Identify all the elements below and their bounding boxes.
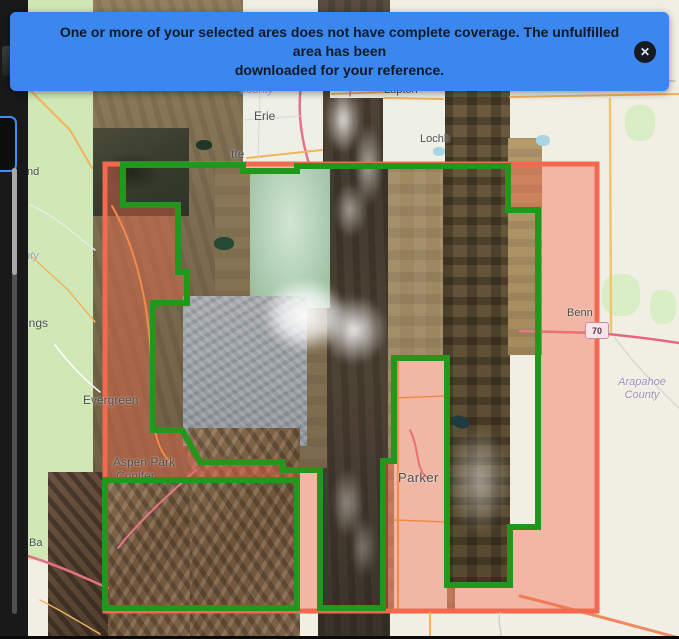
map-label-arapahoe-county: Arapahoe County (612, 376, 672, 402)
map-label-bennett-fragment: Benn (567, 307, 593, 319)
satellite-tile (188, 428, 300, 639)
close-button[interactable]: ✕ (634, 41, 656, 63)
satellite-tile (48, 472, 108, 639)
pond (196, 140, 212, 150)
satellite-tile (508, 138, 542, 355)
map-label-fragment-ings: ings (26, 316, 48, 330)
app-window: Boulder County Erie tte Fred Lupton Loch… (0, 0, 679, 639)
satellite-tile (105, 478, 190, 639)
satellite-tile (183, 296, 307, 446)
map-label-aspen-park: Aspen Park (113, 455, 175, 469)
street-tile (394, 358, 447, 612)
sidebar-tool-selected[interactable] (0, 116, 17, 172)
map-label-lochbuie-fragment: Lochb (420, 133, 450, 145)
map-label-parker: Parker (398, 470, 439, 485)
route-shield-i70: 70 (585, 322, 609, 339)
satellite-tile (250, 166, 330, 308)
scrollbar-thumb[interactable] (12, 168, 17, 275)
map-canvas[interactable] (0, 0, 679, 639)
map-label-fragment-ba: Ba (29, 537, 42, 549)
lake (536, 135, 550, 146)
lake (433, 147, 445, 156)
satellite-tile (93, 128, 189, 216)
map-label-lafayette-fragment: tte (231, 147, 244, 161)
map-label-fragment-nd: nd (27, 166, 39, 178)
satellite-tile (443, 83, 510, 585)
map-label-erie: Erie (254, 109, 275, 123)
pond (214, 237, 234, 250)
sidebar (0, 0, 28, 639)
forest-patch (625, 105, 655, 141)
notification-banner: One or more of your selected ares does n… (10, 12, 669, 91)
street-tile (243, 85, 323, 168)
map-label-evergreen: Evergreen (83, 393, 138, 407)
forest-patch (602, 274, 640, 316)
notification-message: One or more of your selected ares does n… (20, 23, 660, 80)
close-icon: ✕ (640, 46, 650, 58)
forest-patch (650, 290, 676, 324)
